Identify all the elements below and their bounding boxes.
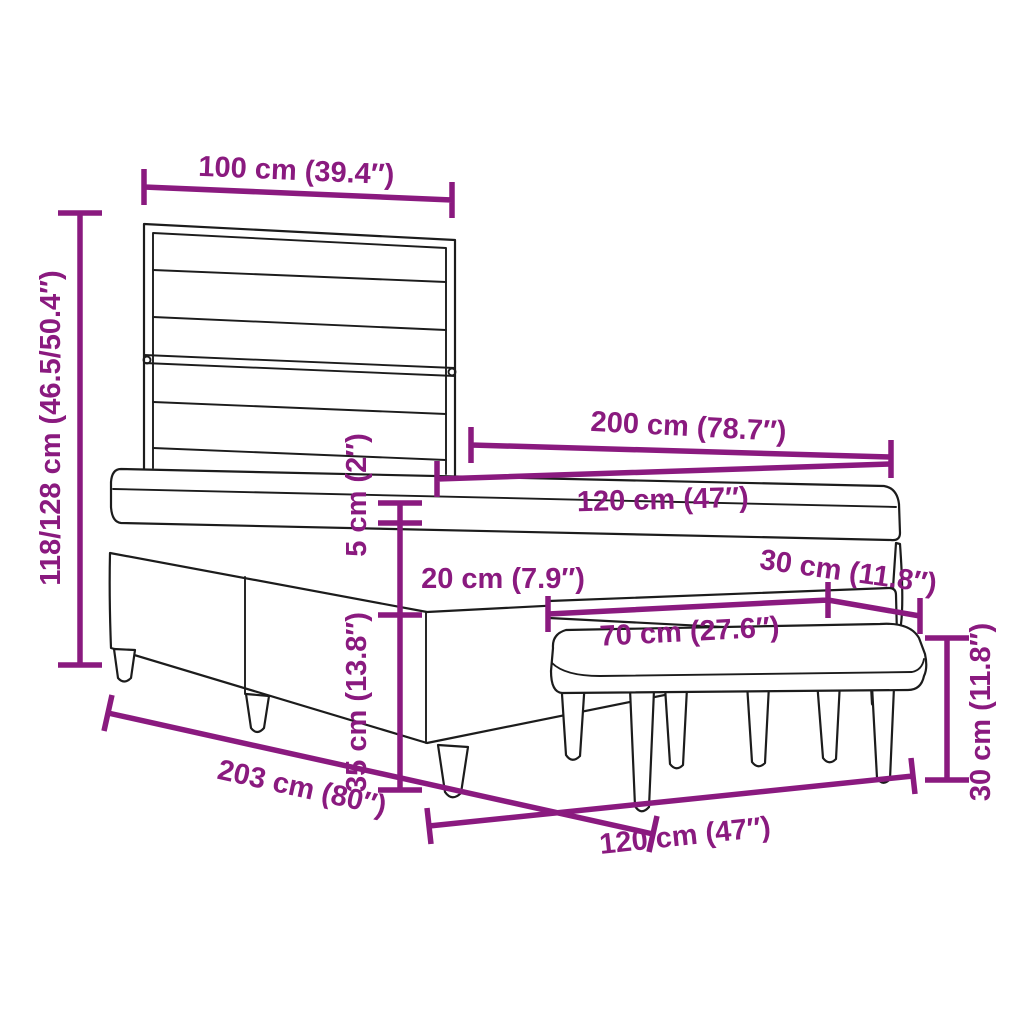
label-bed-length: 200 cm (78.7″) — [590, 406, 787, 448]
diagram-canvas: 100 cm (39.4″) 118/128 cm (46.5/50.4″) 2… — [0, 0, 1024, 1024]
headboard-outer-panel — [144, 224, 455, 480]
bed-leg-front-mid — [246, 694, 269, 732]
label-bed-width: 120 cm (47″) — [576, 482, 749, 518]
bed-leg-front-left — [114, 649, 135, 682]
headboard — [144, 224, 456, 480]
bench-leg-front-mid — [630, 689, 654, 811]
label-headboard-width: 100 cm (39.4″) — [198, 151, 395, 192]
bed-dimension-diagram: 100 cm (39.4″) 118/128 cm (46.5/50.4″) 2… — [0, 0, 1024, 1024]
bench-leg-back-mid — [747, 684, 769, 766]
label-frame-width: 120 cm (47″) — [598, 811, 772, 861]
label-base-height: 35 cm (13.8″) — [341, 612, 373, 792]
label-overall-height: 118/128 cm (46.5/50.4″) — [35, 270, 67, 585]
label-topper-thickness: 5 cm (2″) — [341, 433, 373, 557]
bench-leg-front-right — [817, 681, 840, 762]
bench-leg-back-right — [872, 686, 894, 783]
label-mattress-thickness: 20 cm (7.9″) — [421, 563, 585, 595]
dim-line-bench-height — [925, 638, 969, 780]
label-bench-seat-height: 30 cm (11.8″) — [965, 623, 997, 801]
bench-leg-back-left — [665, 687, 687, 768]
